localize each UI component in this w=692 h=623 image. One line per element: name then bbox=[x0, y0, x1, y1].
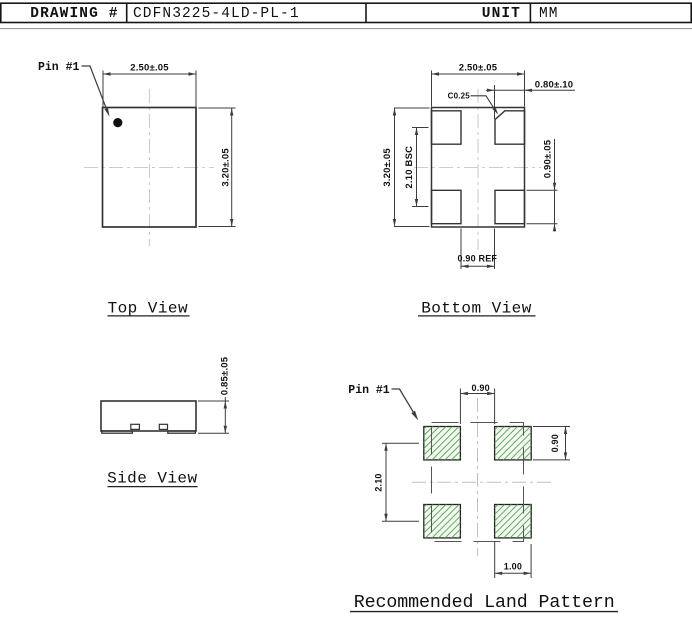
svg-text:0.85±.05: 0.85±.05 bbox=[220, 356, 231, 395]
svg-text:2.50±.05: 2.50±.05 bbox=[459, 62, 498, 73]
svg-text:3.20±.05: 3.20±.05 bbox=[382, 148, 393, 187]
svg-text:Pin #1: Pin #1 bbox=[38, 61, 80, 74]
svg-text:0.90±.05: 0.90±.05 bbox=[543, 139, 554, 178]
svg-text:MM: MM bbox=[539, 6, 559, 22]
svg-text:Recommended Land Pattern: Recommended Land Pattern bbox=[354, 593, 615, 613]
svg-text:0.90: 0.90 bbox=[472, 383, 490, 393]
svg-text:CDFN3225-4LD-PL-1: CDFN3225-4LD-PL-1 bbox=[133, 6, 300, 22]
svg-text:3.20±.05: 3.20±.05 bbox=[220, 148, 231, 187]
svg-text:1.00: 1.00 bbox=[504, 562, 522, 572]
svg-text:0.80±.10: 0.80±.10 bbox=[535, 79, 574, 90]
svg-text:Side View: Side View bbox=[107, 469, 197, 487]
svg-text:Top View: Top View bbox=[108, 299, 188, 317]
svg-text:DRAWING #: DRAWING # bbox=[30, 6, 118, 22]
svg-text:0.90 REF: 0.90 REF bbox=[457, 253, 497, 263]
svg-text:UNIT: UNIT bbox=[482, 6, 521, 22]
svg-text:C0.25: C0.25 bbox=[448, 92, 471, 101]
svg-text:Pin #1: Pin #1 bbox=[348, 384, 390, 397]
svg-text:2.10: 2.10 bbox=[374, 473, 384, 491]
svg-text:0.90: 0.90 bbox=[550, 434, 560, 452]
svg-text:Bottom View: Bottom View bbox=[421, 299, 532, 317]
svg-text:2.10 BSC: 2.10 BSC bbox=[404, 146, 415, 189]
svg-text:2.50±.05: 2.50±.05 bbox=[130, 62, 169, 73]
